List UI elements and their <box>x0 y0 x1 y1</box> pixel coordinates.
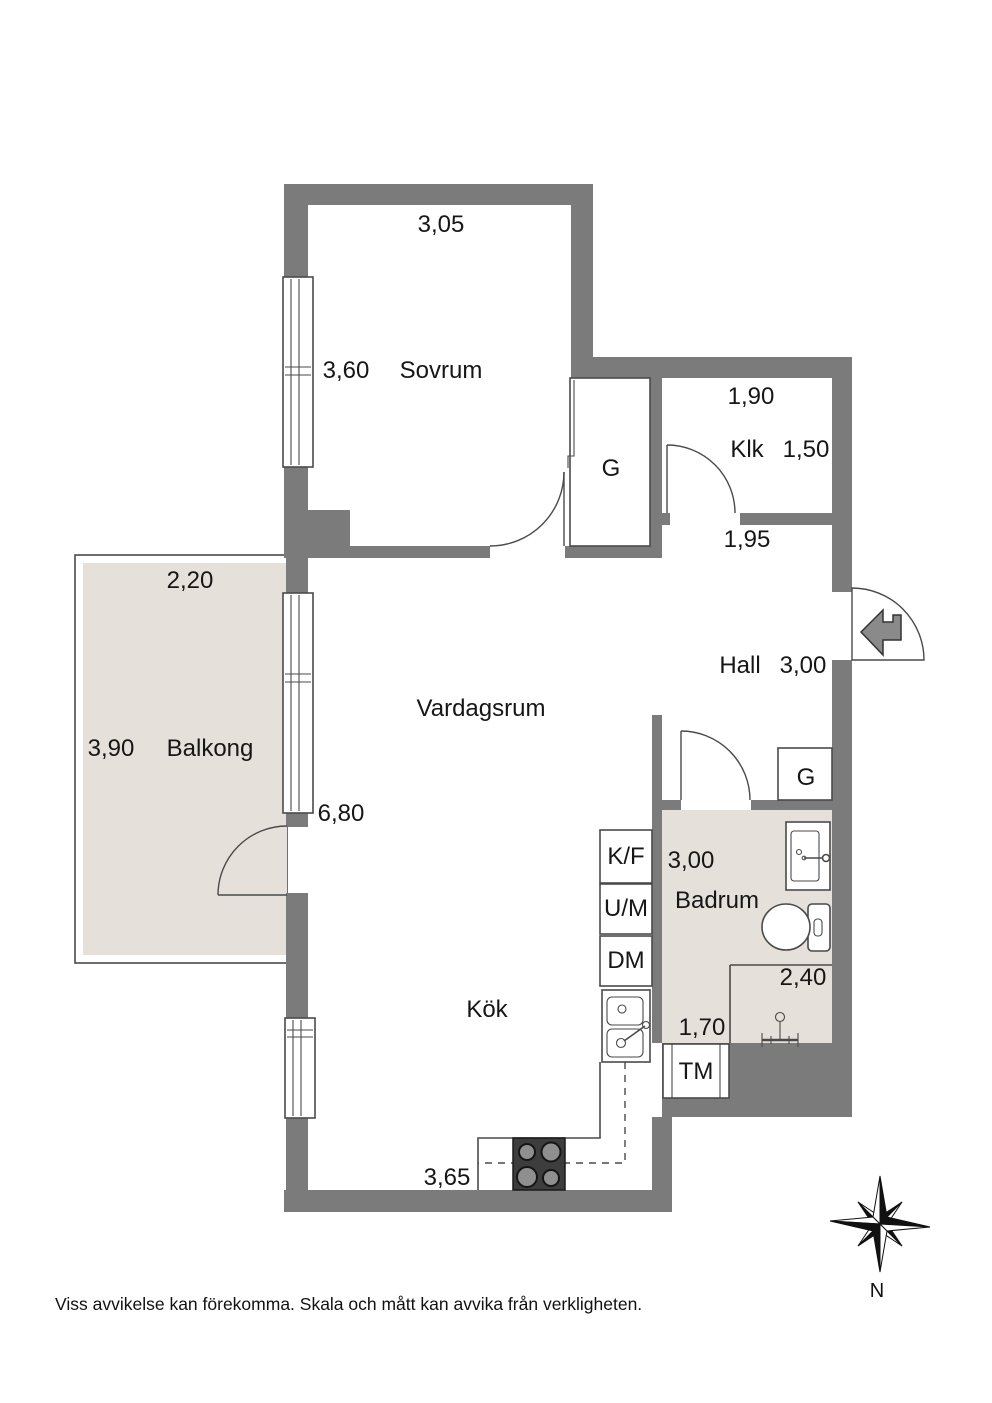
stove-icon <box>513 1138 565 1190</box>
wall-segment <box>284 184 593 205</box>
appliance-label-kf: K/F <box>607 843 644 870</box>
compass-north-label: N <box>870 1280 884 1302</box>
wall-segment <box>740 513 832 525</box>
dim-klk-height: 1,50 <box>783 436 830 463</box>
closet-door <box>667 445 735 513</box>
room-label-hall: Hall <box>719 652 760 679</box>
wall-segment <box>832 378 852 592</box>
kitchen-window <box>285 1018 315 1118</box>
dim-hall-top: 1,95 <box>724 526 771 553</box>
dim-badrum-width: 1,70 <box>679 1014 726 1041</box>
floorplan-drawing: 3,05 3,60 Sovrum 1,90 Klk 1,50 1,95 Hall… <box>0 0 992 1403</box>
kitchen-sink <box>602 990 650 1062</box>
room-label-sovrum: Sovrum <box>400 357 483 384</box>
wall-segment <box>652 1117 672 1192</box>
dim-kok-width: 3,65 <box>424 1164 471 1191</box>
bedroom-window <box>283 277 313 467</box>
wall-segment <box>284 510 350 558</box>
compass-rose-icon: N <box>830 1176 930 1302</box>
wardrobe-label-bedroom: G <box>602 455 621 482</box>
toilet-icon <box>762 904 830 951</box>
dim-hall-width: 3,00 <box>780 652 827 679</box>
room-label-kok: Kök <box>466 996 508 1023</box>
dim-window: 6,80 <box>318 800 365 827</box>
dim-balkong-width: 2,20 <box>167 567 214 594</box>
wall-segment <box>571 205 593 357</box>
washbasin-icon <box>786 822 830 890</box>
wall-segment <box>565 546 662 558</box>
wall-segment <box>652 715 662 1043</box>
wardrobe-label-hall: G <box>797 764 816 791</box>
dim-shower: 2,40 <box>780 964 827 991</box>
livingroom-window <box>283 593 313 813</box>
dim-sovrum-height: 3,60 <box>323 357 370 384</box>
dim-klk-width: 1,90 <box>728 383 775 410</box>
wall-segment <box>284 205 308 277</box>
appliance-label-tm: TM <box>679 1058 714 1085</box>
entrance-door <box>852 588 924 660</box>
wall-segment <box>286 893 308 1018</box>
room-label-balkong: Balkong <box>167 735 254 762</box>
wall-segment <box>286 556 308 593</box>
walls <box>284 184 852 1212</box>
bathroom-door <box>681 731 750 800</box>
dim-sovrum-width: 3,05 <box>418 211 465 238</box>
room-label-badrum: Badrum <box>675 887 759 914</box>
wall-segment <box>286 813 308 827</box>
room-label-klk: Klk <box>730 436 764 463</box>
floorplan-page: 3,05 3,60 Sovrum 1,90 Klk 1,50 1,95 Hall… <box>0 0 992 1403</box>
appliance-label-um: U/M <box>604 895 648 922</box>
wall-segment <box>284 467 308 510</box>
wall-segment <box>284 1190 672 1212</box>
appliance-label-dm: DM <box>607 947 644 974</box>
disclaimer-text: Viss avvikelse kan förekomma. Skala och … <box>55 1294 642 1314</box>
wall-segment <box>650 378 662 546</box>
bedroom-door <box>490 472 564 546</box>
room-label-vardagsrum: Vardagsrum <box>417 695 546 722</box>
wall-segment <box>751 800 832 810</box>
dim-balkong-height: 3,90 <box>88 735 135 762</box>
wall-segment <box>571 357 852 378</box>
wall-segment <box>286 1118 308 1192</box>
dim-badrum-height: 3,00 <box>668 847 715 874</box>
wall-segment <box>662 513 670 525</box>
wall-segment <box>350 546 490 558</box>
wall-segment <box>662 800 681 810</box>
